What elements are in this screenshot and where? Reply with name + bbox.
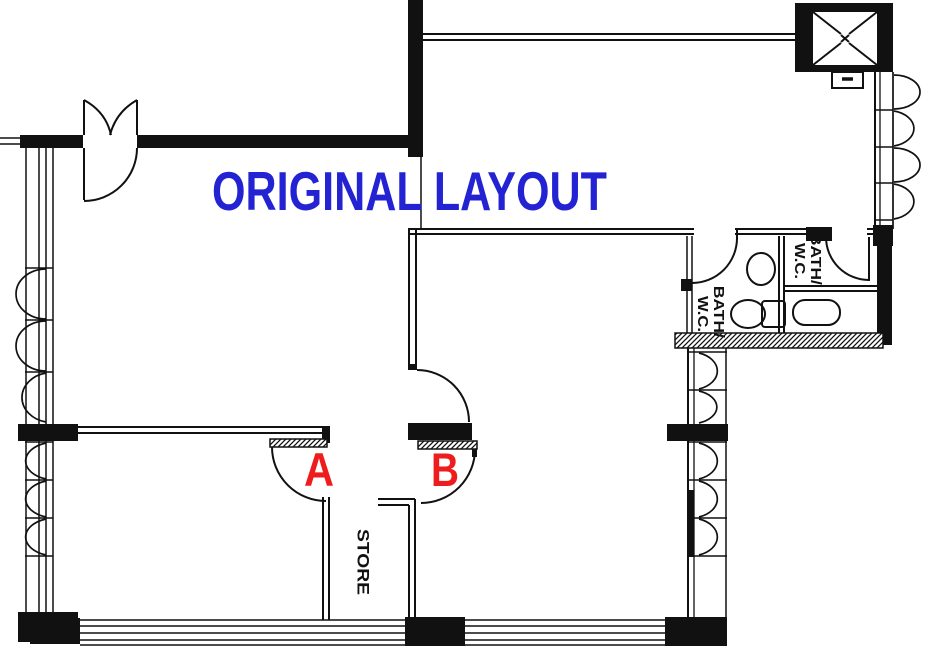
elevator-shaft — [795, 3, 893, 88]
door-a-label: A — [304, 443, 334, 496]
floor-plan-page: ORIGINAL LAYOUT A B STORE BATH/ W.C. BAT… — [0, 0, 927, 650]
bathroom-bottom-wall — [675, 333, 883, 348]
windows-bottom — [30, 617, 727, 646]
bath-right-label: BATH/ W.C. — [792, 233, 825, 289]
bathtub-icon — [793, 300, 840, 325]
door-b-label: B — [431, 443, 459, 496]
toilet-icon — [731, 300, 765, 328]
page-title: ORIGINAL LAYOUT — [212, 160, 607, 222]
floor-plan-drawing: ORIGINAL LAYOUT A B STORE BATH/ W.C. BAT… — [0, 0, 927, 650]
store-label: STORE — [354, 529, 373, 595]
windows-left — [16, 148, 78, 642]
windows-right-lower — [667, 348, 728, 618]
entrance-door — [84, 100, 137, 201]
windows-right-upper — [874, 72, 920, 229]
corridor-door — [417, 370, 469, 422]
basin-icon — [747, 253, 775, 285]
